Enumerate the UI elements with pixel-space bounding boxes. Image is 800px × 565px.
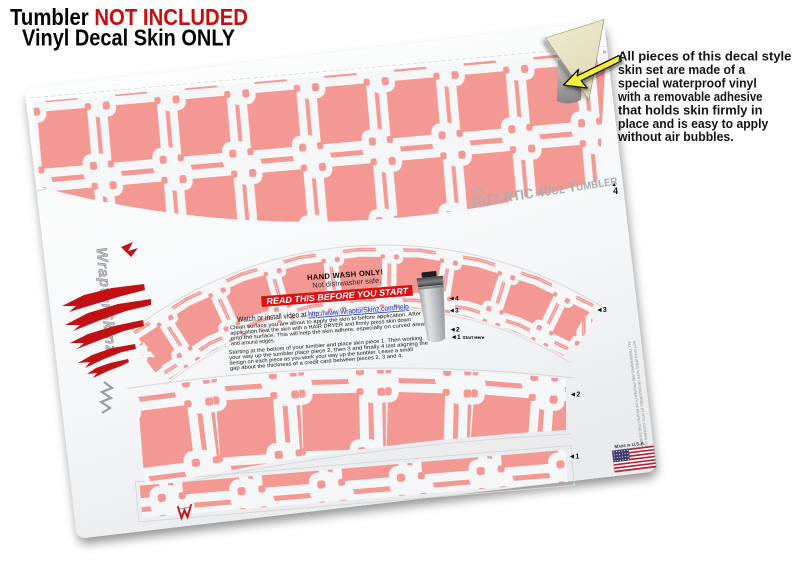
svg-text:◄1 Start Here: ◄1 Start Here	[451, 334, 485, 341]
svg-text:Vinyl Decal Skin ONLY: Vinyl Decal Skin ONLY	[22, 25, 235, 51]
svg-text:◄2: ◄2	[450, 327, 461, 334]
svg-text:◄3: ◄3	[596, 307, 607, 314]
svg-text:4: 4	[613, 186, 618, 196]
svg-text:◄3: ◄3	[449, 308, 460, 315]
svg-text:◄2: ◄2	[570, 392, 581, 399]
svg-text:◄4: ◄4	[449, 296, 460, 303]
svg-text:◄1: ◄1	[569, 454, 580, 461]
